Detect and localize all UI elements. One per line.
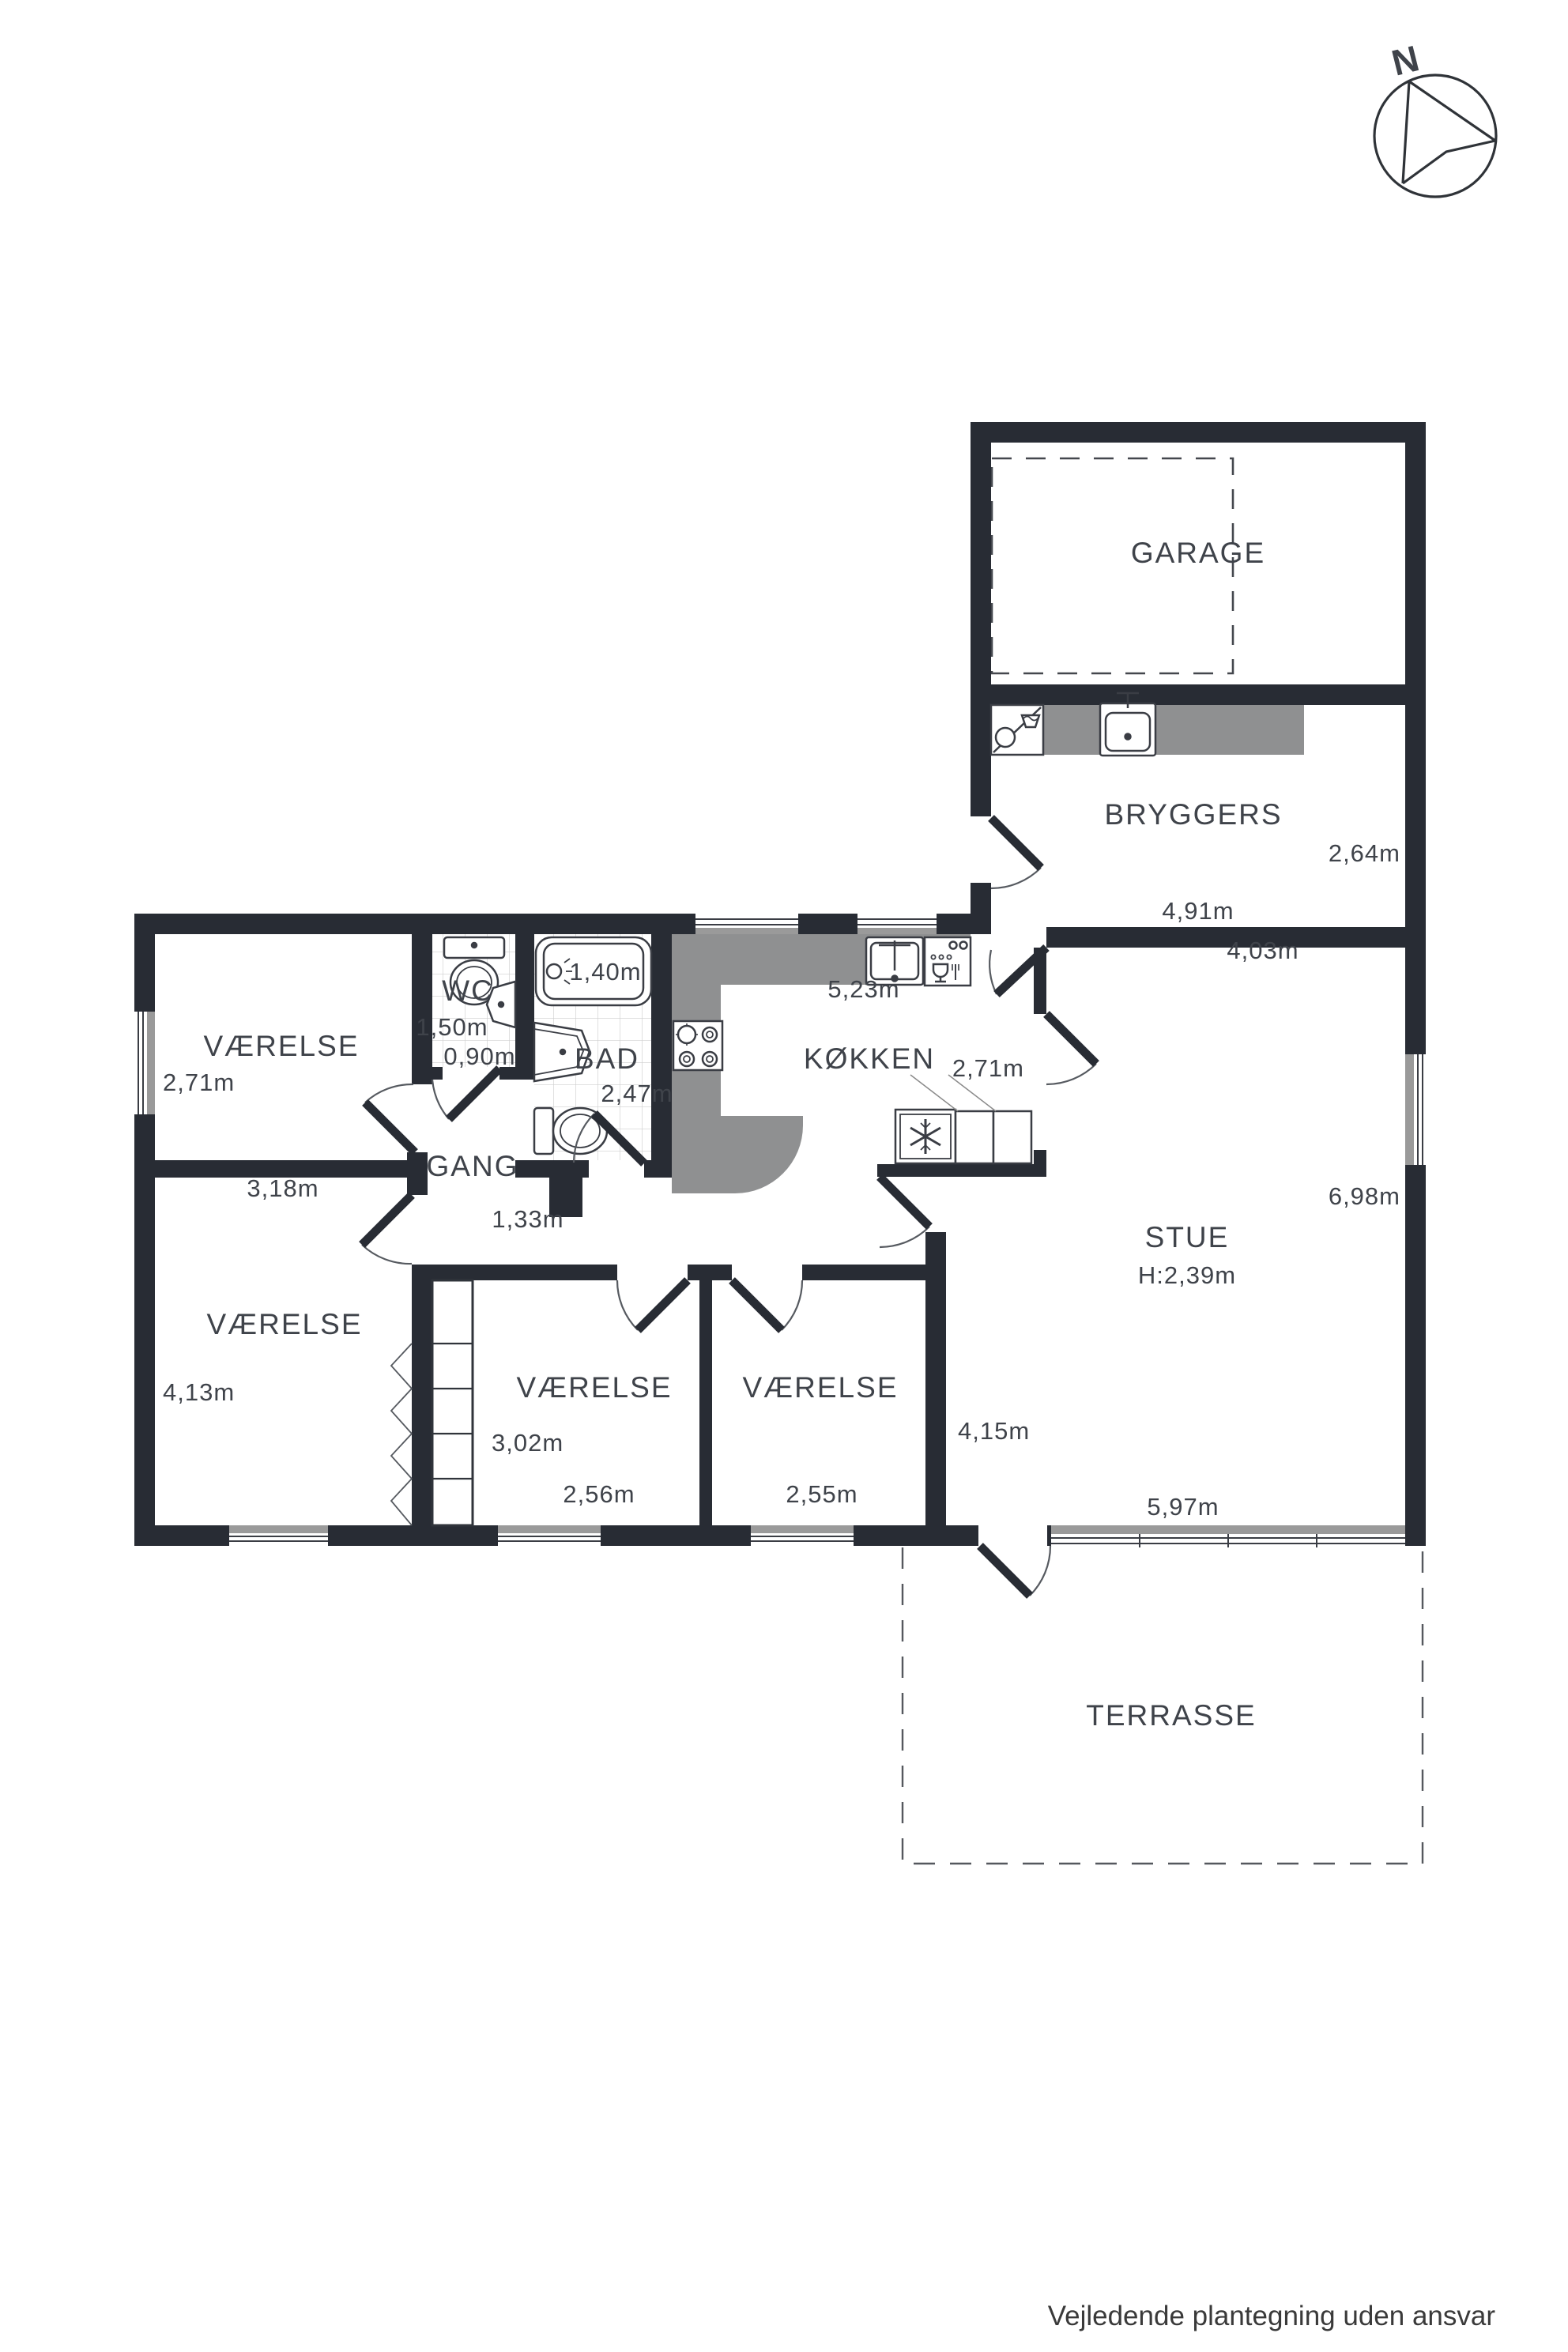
bryggers-depth-dim: 2,64m: [1329, 839, 1400, 867]
window-kitchen-1: [695, 914, 798, 934]
floorplan-page: GARAGE BRYGGERS 2,64m 4,91m 4,03m KØKKEN…: [0, 0, 1568, 2352]
vaerelse-nw-side-dim: 2,71m: [163, 1069, 235, 1096]
vaerelse-s1-bottom-dim: 2,56m: [563, 1480, 635, 1508]
compass-circle: [1374, 75, 1496, 197]
floorplan-drawing: GARAGE BRYGGERS 2,64m 4,91m 4,03m KØKKEN…: [0, 0, 1568, 2352]
bad-depth-dim: 2,47m: [601, 1080, 673, 1107]
stove-icon: [673, 1021, 722, 1070]
wall-wc-west: [412, 934, 432, 1084]
stue-side-dim: 6,98m: [1329, 1182, 1400, 1210]
bad-tub-dim: 1,40m: [569, 958, 641, 986]
kokken-width-dim: 5,23m: [827, 975, 899, 1003]
stue-west-dim: 4,15m: [958, 1417, 1030, 1445]
wc-length-dim: 1,50m: [416, 1013, 488, 1041]
door-leaf-kokken-stue: [1046, 1014, 1096, 1064]
entrance-door-opening: [971, 816, 991, 883]
vaerelse-sw-label: VÆRELSE: [206, 1308, 362, 1340]
door-leaf-vaerelse-s1: [638, 1280, 688, 1330]
terrasse-label: TERRASSE: [1086, 1699, 1256, 1732]
wall-fridge-row: [877, 1164, 1046, 1177]
wall-garage-bottom: [971, 684, 1426, 705]
disclaimer-text: Vejledende plantegning uden ansvar: [1048, 2301, 1496, 2331]
wall-garage-top: [971, 422, 1426, 443]
stue-bottom-dim: 5,97m: [1147, 1493, 1219, 1521]
wall-bad-south-west: [515, 1160, 589, 1178]
wall-wardrobe-west: [412, 1280, 432, 1525]
kokken-label: KØKKEN: [804, 1042, 935, 1075]
wardrobe: [391, 1280, 473, 1525]
vaerelse-sw-side-dim: 4,13m: [163, 1378, 235, 1406]
wall-corridor-south-2: [688, 1265, 732, 1280]
wc-label: WC: [442, 974, 494, 1007]
wall-kitchen-stue-divider-bottom: [1034, 1150, 1046, 1164]
dishwasher-icon: [925, 937, 971, 986]
window-south-1: [229, 1525, 328, 1546]
washing-machine-icon: [991, 705, 1043, 755]
vaerelse-nw-bottom-dim: 3,18m: [247, 1174, 318, 1202]
wall-mid-rooms-divider: [699, 1280, 712, 1525]
wall-left-outer: [134, 914, 155, 1546]
door-leaf-vaerelse-s2: [732, 1280, 782, 1330]
wall-right-outer: [1405, 422, 1426, 1546]
fridge-icon: [895, 1110, 955, 1163]
wall-gang-cap: [407, 1152, 428, 1195]
gang-width-dim: 1,33m: [492, 1205, 563, 1233]
wall-corridor-south-1: [412, 1265, 617, 1280]
wall-garage-left: [971, 422, 991, 705]
wall-corridor-south-3: [802, 1265, 925, 1280]
vaerelse-s1-side-dim: 3,02m: [492, 1429, 563, 1457]
stue-ceiling-dim: H:2,39m: [1138, 1261, 1236, 1289]
window-west: [134, 1012, 155, 1114]
wall-wc-stub-west: [432, 1067, 443, 1080]
window-stue-south: [1051, 1525, 1405, 1548]
vaerelse-s2-bottom-dim: 2,55m: [786, 1480, 857, 1508]
stue-top-dim: 4,03m: [1227, 937, 1298, 964]
bryggers-label: BRYGGERS: [1104, 798, 1282, 831]
wall-top-main: [134, 914, 971, 934]
window-south-3: [751, 1525, 854, 1546]
door-leaf-wc: [449, 1069, 499, 1119]
bryggers-width-dim: 4,91m: [1162, 897, 1234, 925]
window-south-2: [498, 1525, 601, 1546]
door-leaf-vaerelse-nw: [365, 1102, 415, 1152]
vaerelse-s2-label: VÆRELSE: [742, 1371, 898, 1404]
kokken-door-dim: 2,71m: [952, 1054, 1024, 1082]
vaerelse-nw-label: VÆRELSE: [203, 1030, 359, 1062]
garage-label: GARAGE: [1131, 537, 1265, 569]
door-leaf-terrasse: [980, 1546, 1030, 1596]
windows: [134, 914, 1426, 1548]
door-leaf-entrance: [991, 818, 1041, 868]
wardrobe-door-marks: [391, 1344, 412, 1525]
door-leaf-vaerelse-sw: [362, 1195, 412, 1245]
vaerelse-s1-label: VÆRELSE: [516, 1371, 672, 1404]
window-east: [1405, 1054, 1426, 1165]
bad-label: BAD: [575, 1042, 639, 1075]
door-leaf-gang-stue: [880, 1177, 929, 1227]
wall-bad-east: [651, 914, 672, 1178]
window-kitchen-2: [857, 914, 937, 934]
wc-width-dim: 0,90m: [443, 1042, 515, 1070]
compass: N: [1374, 37, 1496, 197]
wall-stue-west: [925, 1232, 946, 1525]
stue-label: STUE: [1145, 1221, 1230, 1253]
north-label: N: [1388, 37, 1423, 83]
wall-wc-east: [515, 934, 534, 1080]
gang-label: GANG: [427, 1150, 519, 1182]
terrasse-door-opening: [978, 1525, 1047, 1546]
wall-bad-south-east: [644, 1160, 672, 1178]
